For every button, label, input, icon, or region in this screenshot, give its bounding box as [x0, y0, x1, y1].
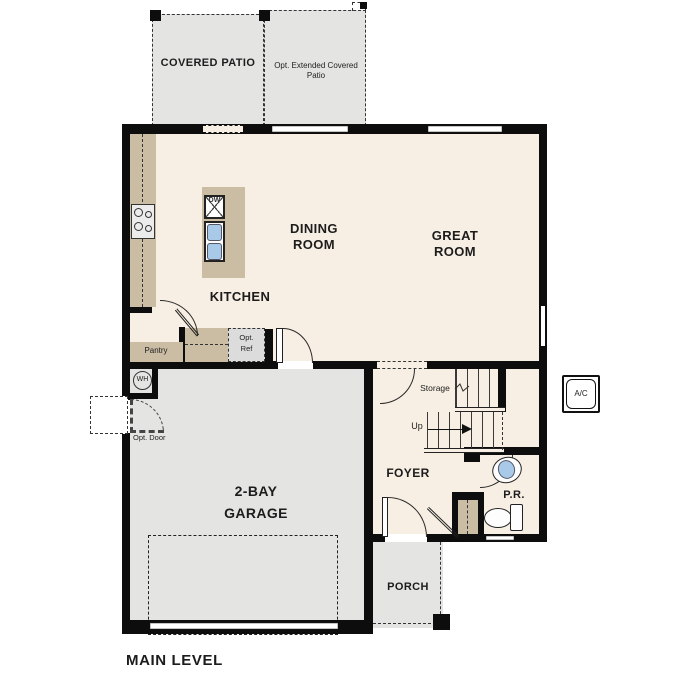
porch-corner-post	[433, 614, 450, 630]
level-title: MAIN LEVEL	[126, 652, 266, 670]
stair-side-wall	[498, 361, 506, 412]
garage-door	[150, 622, 338, 630]
powder-room-label: P.R.	[494, 489, 534, 502]
window	[428, 125, 502, 133]
floor-plan: COVERED PATIO Opt. Extended Covered Pati…	[0, 0, 687, 687]
window	[540, 306, 546, 346]
sink-basin	[207, 243, 222, 260]
garage-entry-door-leaf	[276, 328, 283, 363]
greatroom-foyer-wall	[427, 361, 547, 369]
stairs-up-label: Up	[406, 421, 428, 431]
coat-closet-floor	[458, 500, 478, 534]
porch-label: PORCH	[380, 581, 436, 594]
patio-post	[360, 2, 367, 9]
window	[272, 125, 348, 133]
burner	[134, 222, 143, 231]
great-room-label: GREAT ROOM	[421, 228, 489, 261]
opt-door-label: Opt. Door	[128, 433, 166, 444]
storage-leader-zigzag	[454, 382, 470, 394]
foyer-label: FOYER	[379, 466, 437, 480]
sink-basin	[207, 224, 222, 241]
stair-break-line	[502, 412, 503, 450]
toilet-tank	[510, 504, 523, 531]
water-heater-label: WH	[133, 376, 152, 383]
wh-niche-wall	[152, 369, 158, 395]
covered-patio-label: COVERED PATIO	[160, 57, 256, 70]
ac-label: A/C	[566, 389, 596, 398]
stair-bottom-edge	[424, 448, 504, 453]
stairs-up-arrow-line	[428, 429, 464, 430]
powder-room-window	[486, 535, 514, 541]
closet-dash-line	[467, 500, 468, 534]
patio-post	[259, 10, 270, 21]
kitchen-garage-wall	[122, 361, 278, 369]
pantry-label: Pantry	[130, 346, 182, 355]
wh-niche-wall	[130, 393, 158, 399]
burner	[145, 211, 152, 218]
sliding-door	[203, 125, 243, 133]
dining-room-label: DINING ROOM	[281, 221, 347, 254]
garage-right-wall	[364, 361, 373, 634]
dishwasher-label: DW	[204, 197, 225, 204]
closet-wall-right	[478, 492, 484, 538]
ref-wall-stub	[265, 329, 273, 362]
exterior-wall-left	[122, 124, 130, 634]
toilet-bowl	[484, 508, 512, 528]
burner	[134, 208, 143, 217]
foyer-cased-opening	[377, 361, 427, 369]
garage-label: 2-BAY GARAGE	[210, 481, 302, 524]
patio-post	[150, 10, 161, 21]
kitchen-label: KITCHEN	[202, 289, 278, 305]
extended-patio-label: Opt. Extended Covered Patio	[273, 61, 359, 82]
stairs-up-arrow-head	[462, 424, 472, 434]
opt-ref-label: Opt. Ref	[233, 333, 260, 355]
counter-dash-line	[185, 344, 228, 345]
storage-label: Storage	[415, 383, 455, 393]
burner	[145, 225, 152, 232]
opt-door-box	[90, 396, 128, 434]
